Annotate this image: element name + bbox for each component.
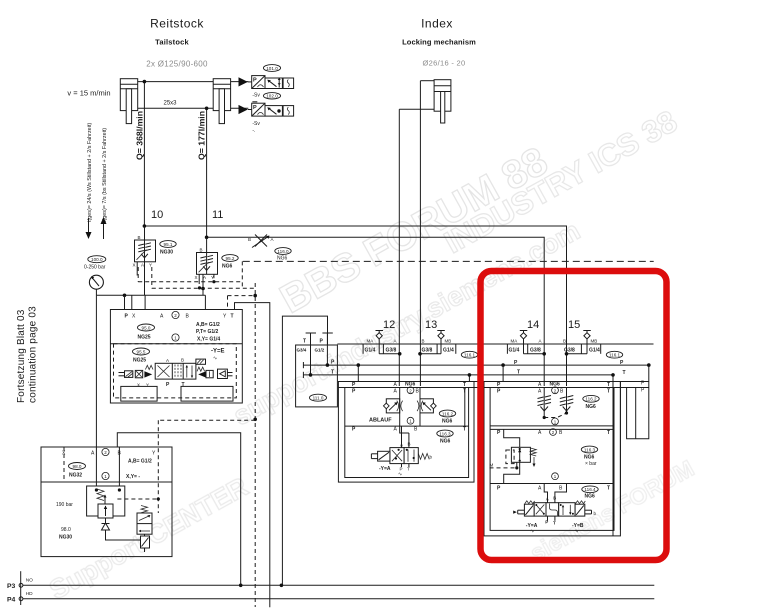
svg-text:NG6: NG6 [585, 494, 596, 500]
svg-text:-Y=E: -Y=E [211, 349, 225, 355]
svg-text:G1/4: G1/4 [365, 348, 376, 354]
svg-text:11: 11 [212, 209, 223, 221]
svg-text:15: 15 [568, 319, 580, 331]
svg-text:P: P [400, 467, 403, 472]
svg-text:∿: ∿ [213, 356, 217, 362]
svg-text:NG6: NG6 [586, 404, 597, 410]
svg-text:P: P [545, 520, 548, 525]
svg-text:116.2: 116.2 [585, 397, 597, 402]
svg-text:M: M [490, 463, 494, 468]
svg-text:× bar: × bar [585, 461, 597, 467]
svg-text:B: B [248, 237, 251, 242]
svg-text:HD: HD [26, 591, 33, 597]
svg-text:X: X [195, 275, 198, 280]
svg-text:116.0: 116.0 [277, 249, 289, 254]
svg-text:Ø26/16 - 20: Ø26/16 - 20 [423, 59, 466, 68]
svg-text:A: A [271, 237, 274, 242]
svg-text:A: A [546, 497, 549, 502]
svg-text:12: 12 [383, 319, 395, 331]
svg-text:T: T [407, 467, 410, 472]
svg-text:NG30: NG30 [160, 250, 173, 256]
svg-text:G1/4: G1/4 [509, 348, 520, 354]
svg-text:116.3: 116.3 [439, 431, 451, 436]
svg-text:MA: MA [511, 339, 518, 344]
svg-text:T: T [553, 521, 556, 526]
svg-text:-Sv: -Sv [252, 121, 260, 127]
svg-text:T: T [182, 382, 185, 388]
svg-text:102.0: 102.0 [266, 94, 278, 99]
svg-text:B: B [138, 235, 141, 240]
svg-text:X,Y= G1/4: X,Y= G1/4 [197, 337, 220, 343]
svg-text:95.5: 95.5 [137, 349, 146, 354]
svg-text:NG6: NG6 [442, 419, 453, 425]
svg-text:G3/8: G3/8 [422, 348, 433, 354]
svg-text:v = 15 m/min: v = 15 m/min [67, 89, 110, 98]
svg-text:G1/4: G1/4 [589, 348, 600, 354]
svg-text:A: A [400, 443, 403, 448]
svg-text:A,B= G1/2: A,B= G1/2 [128, 459, 152, 465]
svg-text:X,Y= -: X,Y= - [126, 474, 140, 480]
svg-text:A: A [394, 339, 397, 344]
svg-text:MB: MB [591, 339, 598, 344]
svg-text:T: T [623, 370, 626, 376]
svg-text:T: T [517, 370, 520, 376]
svg-text:P4: P4 [7, 596, 16, 603]
svg-text:116.1: 116.1 [609, 353, 621, 358]
svg-text:-Sv: -Sv [252, 93, 260, 99]
svg-text:P: P [253, 78, 257, 84]
svg-text:B: B [563, 339, 566, 344]
svg-text:Reitstock: Reitstock [150, 17, 204, 31]
svg-text:95.0: 95.0 [142, 325, 151, 330]
svg-text:A: A [141, 263, 144, 268]
svg-text:116.3: 116.3 [584, 447, 596, 452]
svg-text:∿: ∿ [530, 529, 534, 535]
svg-text:116.1: 116.1 [464, 353, 476, 358]
svg-text:A,B= G1/2: A,B= G1/2 [196, 322, 220, 328]
svg-text:T: T [607, 388, 610, 394]
svg-text:190 bar: 190 bar [56, 502, 73, 508]
svg-text:NG30: NG30 [59, 535, 72, 541]
svg-text:A: A [166, 358, 169, 363]
svg-text:Fortsetzung Blatt 03: Fortsetzung Blatt 03 [16, 309, 27, 403]
svg-text:95.2: 95.2 [226, 256, 235, 261]
svg-text:T: T [303, 339, 306, 345]
svg-text:2x Ø125/90-600: 2x Ø125/90-600 [146, 60, 208, 69]
svg-text:NG25: NG25 [133, 358, 146, 364]
svg-text:116.4: 116.4 [584, 487, 596, 492]
svg-text:Y: Y [149, 263, 152, 268]
svg-text:T: T [463, 427, 466, 433]
svg-text:Q= 177l/min: Q= 177l/min [197, 111, 207, 160]
svg-text:NG6: NG6 [440, 439, 451, 445]
svg-text:Q= 368l/min: Q= 368l/min [135, 111, 145, 160]
svg-text:0-250 bar: 0-250 bar [84, 265, 106, 271]
svg-text:B: B [553, 496, 556, 501]
svg-text:B: B [200, 248, 203, 253]
svg-text:B: B [181, 357, 184, 362]
svg-text:10: 10 [151, 209, 163, 221]
svg-text:∿: ∿ [398, 472, 402, 478]
svg-text:t(ges)= 7/s (bs Stillstand + 2: t(ges)= 7/s (bs Stillstand + 2/s Fahrzei… [102, 128, 108, 222]
svg-text:P3: P3 [7, 583, 16, 590]
svg-text:-.: -. [252, 128, 255, 134]
svg-text:Locking mechanism: Locking mechanism [402, 38, 476, 47]
svg-text:NG6: NG6 [584, 455, 595, 461]
svg-text:Tailstock: Tailstock [155, 38, 189, 47]
svg-text:P: P [253, 105, 257, 111]
svg-text:T: T [463, 382, 466, 388]
svg-text:T: T [331, 370, 334, 376]
svg-text:ABLAUF: ABLAUF [369, 418, 392, 424]
svg-text:P,T= G1/2: P,T= G1/2 [196, 329, 219, 335]
svg-text:NG25: NG25 [138, 335, 151, 341]
svg-text:t(ges)= 24/s (Ws Stillstand +: t(ges)= 24/s (Ws Stillstand + 2/s Fahrze… [87, 123, 93, 222]
svg-text:98.0: 98.0 [73, 464, 82, 469]
svg-text:111.0: 111.0 [313, 396, 324, 401]
svg-text:98.0: 98.0 [61, 527, 71, 533]
svg-text:T: T [607, 382, 610, 388]
svg-text:Index: Index [421, 17, 453, 31]
svg-text:T: T [607, 486, 610, 492]
svg-text:B: B [408, 442, 411, 447]
svg-text:∿: ∿ [575, 529, 579, 535]
svg-text:MA: MA [367, 339, 374, 344]
svg-text:95.1: 95.1 [164, 242, 173, 247]
svg-text:X: X [133, 263, 136, 268]
svg-text:A: A [539, 339, 542, 344]
svg-text:NG32: NG32 [69, 473, 82, 479]
svg-text:NO: NO [26, 578, 33, 584]
svg-text:G3/4: G3/4 [297, 348, 307, 353]
svg-text:101.0: 101.0 [266, 66, 278, 71]
svg-text:G1/2: G1/2 [315, 348, 325, 353]
svg-text:-Y=A: -Y=A [379, 466, 391, 472]
svg-text:14: 14 [527, 319, 539, 331]
svg-text:G3/8: G3/8 [530, 348, 541, 354]
svg-text:NG6: NG6 [222, 264, 233, 270]
svg-text:G1/4: G1/4 [443, 348, 454, 354]
svg-text:B: B [422, 339, 425, 344]
svg-text:T: T [231, 314, 234, 320]
svg-text:25x3: 25x3 [163, 101, 177, 107]
svg-text:13: 13 [425, 319, 437, 331]
svg-text:continuation page 03: continuation page 03 [28, 306, 39, 403]
svg-text:116.2: 116.2 [442, 411, 454, 416]
svg-text:NG6: NG6 [277, 256, 288, 262]
svg-text:G3/8: G3/8 [564, 348, 575, 354]
svg-text:MB: MB [445, 339, 452, 344]
svg-text:100.0: 100.0 [91, 257, 103, 262]
svg-text:G3/8: G3/8 [386, 348, 397, 354]
svg-text:T: T [607, 430, 610, 436]
